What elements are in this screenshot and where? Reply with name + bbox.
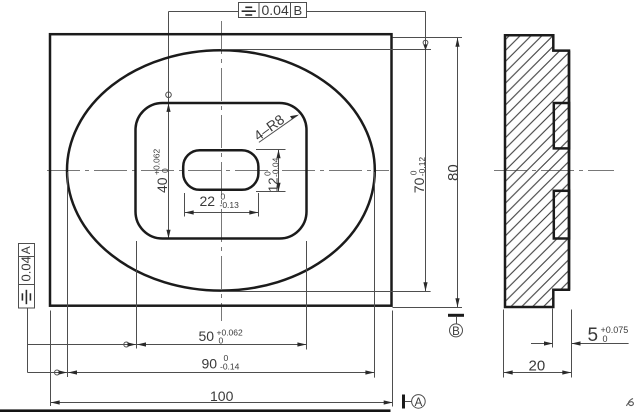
svg-text:80: 80 xyxy=(445,164,462,181)
svg-text:0: 0 xyxy=(603,334,608,344)
svg-text:12: 12 xyxy=(266,178,281,192)
svg-text:22: 22 xyxy=(200,193,216,209)
svg-text:20: 20 xyxy=(529,358,546,375)
svg-text:0.04: 0.04 xyxy=(262,2,289,18)
svg-text:0.04: 0.04 xyxy=(19,256,34,281)
svg-text:A: A xyxy=(19,246,33,254)
svg-text:0: 0 xyxy=(219,335,224,345)
svg-text:-0.13: -0.13 xyxy=(220,200,240,210)
svg-text:100: 100 xyxy=(210,388,234,404)
svg-text:-0.14: -0.14 xyxy=(220,361,240,371)
svg-text:50: 50 xyxy=(199,328,215,344)
svg-text:40: 40 xyxy=(154,177,170,193)
svg-text:-0.04: -0.04 xyxy=(271,157,281,177)
svg-text:90: 90 xyxy=(202,355,218,371)
svg-text:-0.12: -0.12 xyxy=(417,157,427,177)
svg-text:5: 5 xyxy=(588,325,599,346)
svg-text:B: B xyxy=(452,326,460,338)
svg-text:A: A xyxy=(415,397,423,409)
svg-text:70: 70 xyxy=(411,177,427,193)
svg-text:0: 0 xyxy=(160,168,170,173)
svg-text:B: B xyxy=(294,3,303,18)
